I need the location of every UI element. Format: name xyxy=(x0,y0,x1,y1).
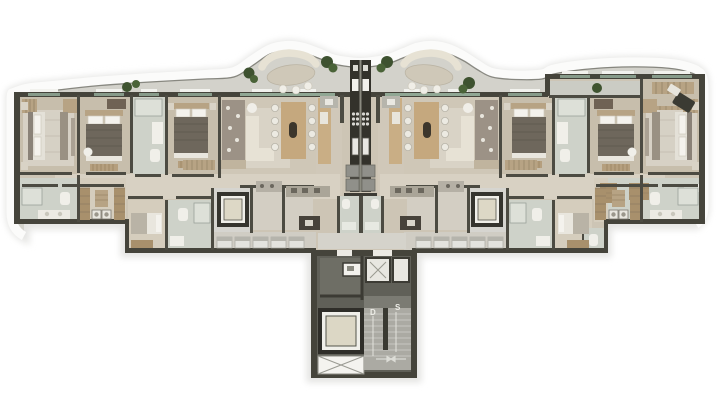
svg-text:S: S xyxy=(395,303,401,312)
svg-text:D: D xyxy=(370,308,376,317)
